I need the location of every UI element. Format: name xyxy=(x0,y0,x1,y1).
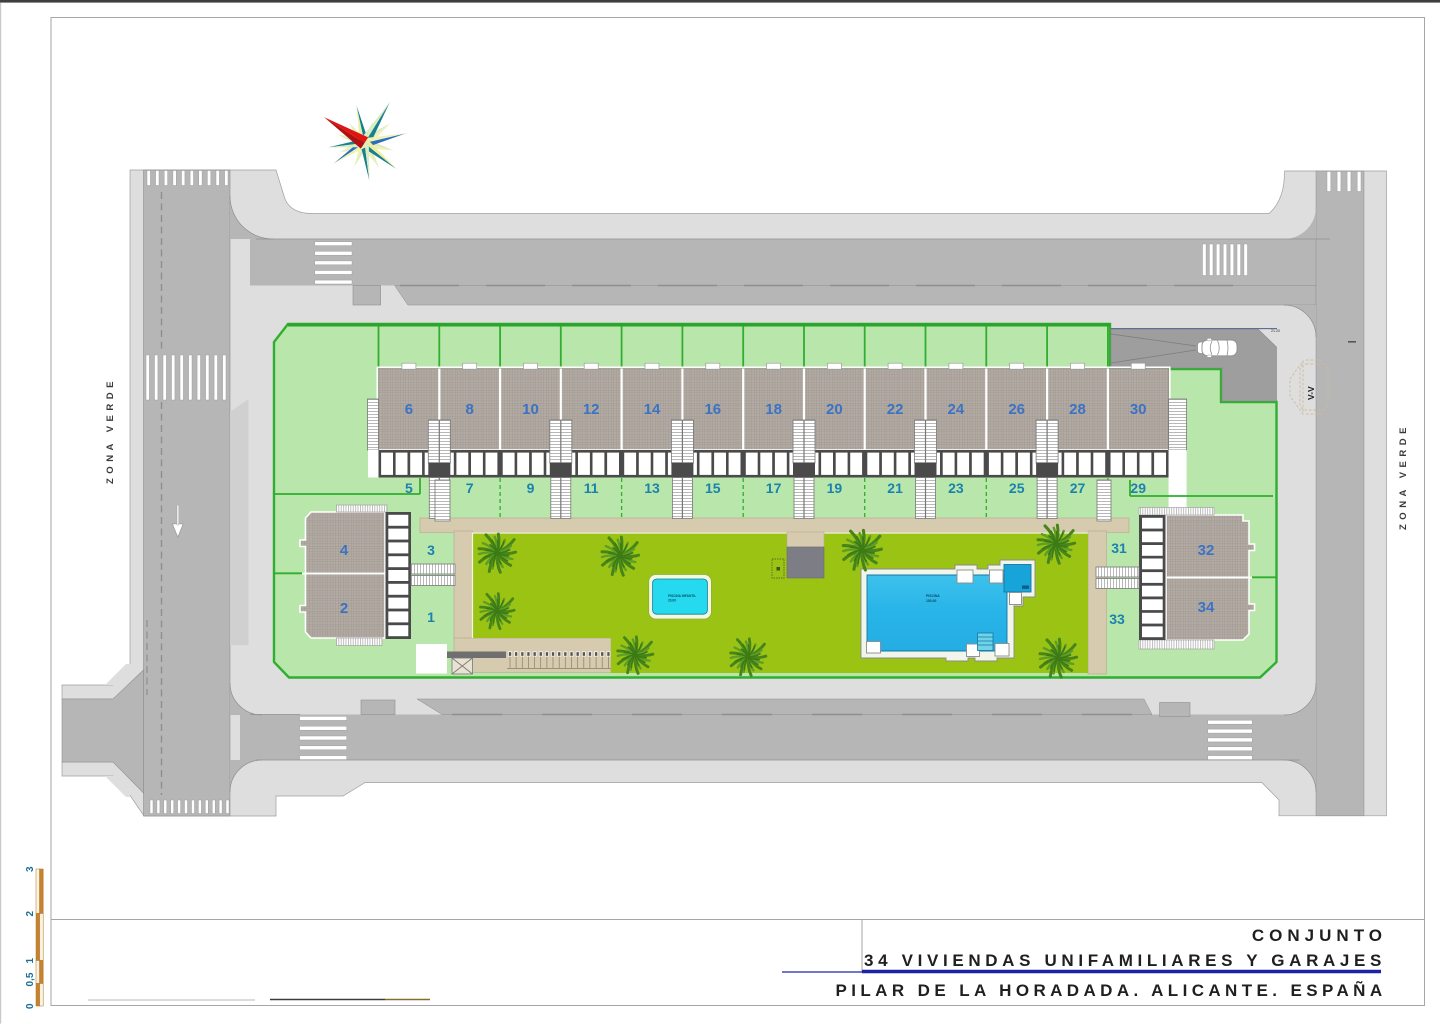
svg-text:25: 25 xyxy=(1009,480,1025,496)
svg-text:10: 10 xyxy=(522,401,539,418)
svg-text:30: 30 xyxy=(1130,401,1147,418)
svg-text:22: 22 xyxy=(887,401,904,418)
svg-text:16: 16 xyxy=(704,401,721,418)
svg-text:13: 13 xyxy=(644,480,660,496)
svg-text:20: 20 xyxy=(826,401,843,418)
svg-text:8: 8 xyxy=(466,401,474,418)
svg-text:34 VIVIENDAS UNIFAMILIARES Y G: 34 VIVIENDAS UNIFAMILIARES Y GARAJES xyxy=(864,951,1386,970)
svg-text:PISCINA INFANTIL: PISCINA INFANTIL xyxy=(668,594,696,598)
svg-text:28: 28 xyxy=(1069,401,1086,418)
svg-text:18: 18 xyxy=(765,401,782,418)
svg-text:PILAR DE LA HORADADA. ALICANTE: PILAR DE LA HORADADA. ALICANTE. ESPAÑA xyxy=(836,980,1387,1000)
svg-text:150,00: 150,00 xyxy=(926,599,936,603)
svg-text:20,00: 20,00 xyxy=(668,599,676,603)
svg-text:6: 6 xyxy=(405,401,413,418)
svg-text:3: 3 xyxy=(25,866,36,872)
svg-text:23: 23 xyxy=(948,480,964,496)
svg-text:26: 26 xyxy=(1008,401,1025,418)
svg-text:V-V: V-V xyxy=(1306,386,1316,400)
svg-text:ZONA VERDE: ZONA VERDE xyxy=(1398,423,1409,530)
svg-text:11: 11 xyxy=(584,480,599,496)
svg-text:31: 31 xyxy=(1111,540,1127,556)
svg-text:0: 0 xyxy=(25,1003,36,1009)
svg-text:3: 3 xyxy=(427,542,435,558)
svg-text:2: 2 xyxy=(340,600,348,617)
svg-text:4: 4 xyxy=(340,542,349,559)
svg-text:27: 27 xyxy=(1070,480,1086,496)
svg-text:24: 24 xyxy=(948,401,965,418)
svg-text:32: 32 xyxy=(1198,542,1215,559)
svg-text:17: 17 xyxy=(766,480,782,496)
svg-text:15: 15 xyxy=(705,480,721,496)
svg-text:7: 7 xyxy=(466,480,474,496)
svg-text:21.20: 21.20 xyxy=(1271,329,1280,333)
svg-text:2: 2 xyxy=(25,911,36,917)
svg-text:ZONA VERDE: ZONA VERDE xyxy=(105,377,116,484)
svg-text:0,5: 0,5 xyxy=(25,972,36,986)
svg-text:CONJUNTO: CONJUNTO xyxy=(1252,926,1387,945)
svg-text:14: 14 xyxy=(644,401,661,418)
svg-text:21: 21 xyxy=(887,480,903,496)
svg-text:19: 19 xyxy=(827,480,843,496)
svg-text:9: 9 xyxy=(527,480,535,496)
svg-text:1: 1 xyxy=(427,609,435,625)
svg-text:PISCINA: PISCINA xyxy=(926,594,940,598)
svg-text:12: 12 xyxy=(583,401,600,418)
svg-text:29: 29 xyxy=(1130,480,1146,496)
svg-text:34: 34 xyxy=(1198,599,1215,616)
svg-text:33: 33 xyxy=(1109,611,1125,627)
svg-text:1: 1 xyxy=(25,958,36,964)
